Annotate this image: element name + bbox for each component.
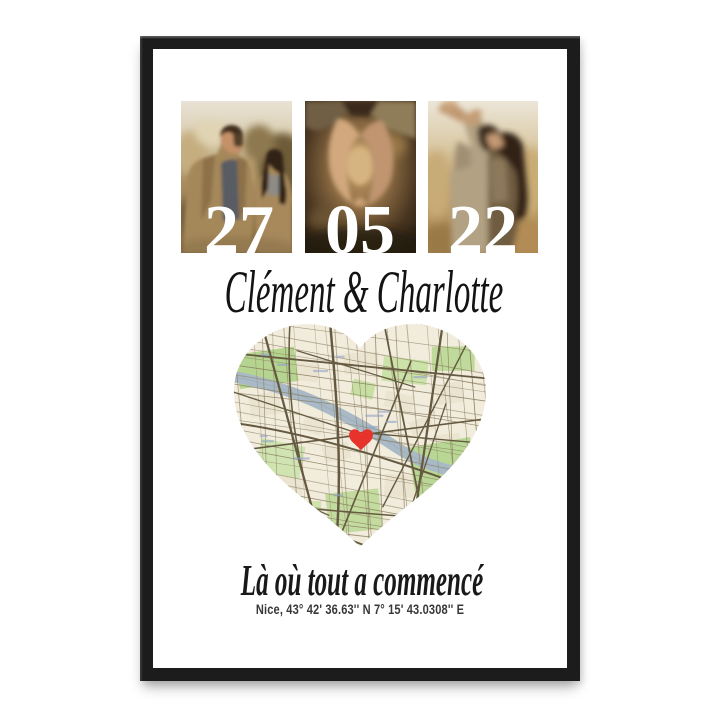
svg-text:05: 05: [325, 192, 395, 253]
svg-text:27: 27: [204, 192, 274, 253]
svg-text:22: 22: [448, 192, 518, 253]
